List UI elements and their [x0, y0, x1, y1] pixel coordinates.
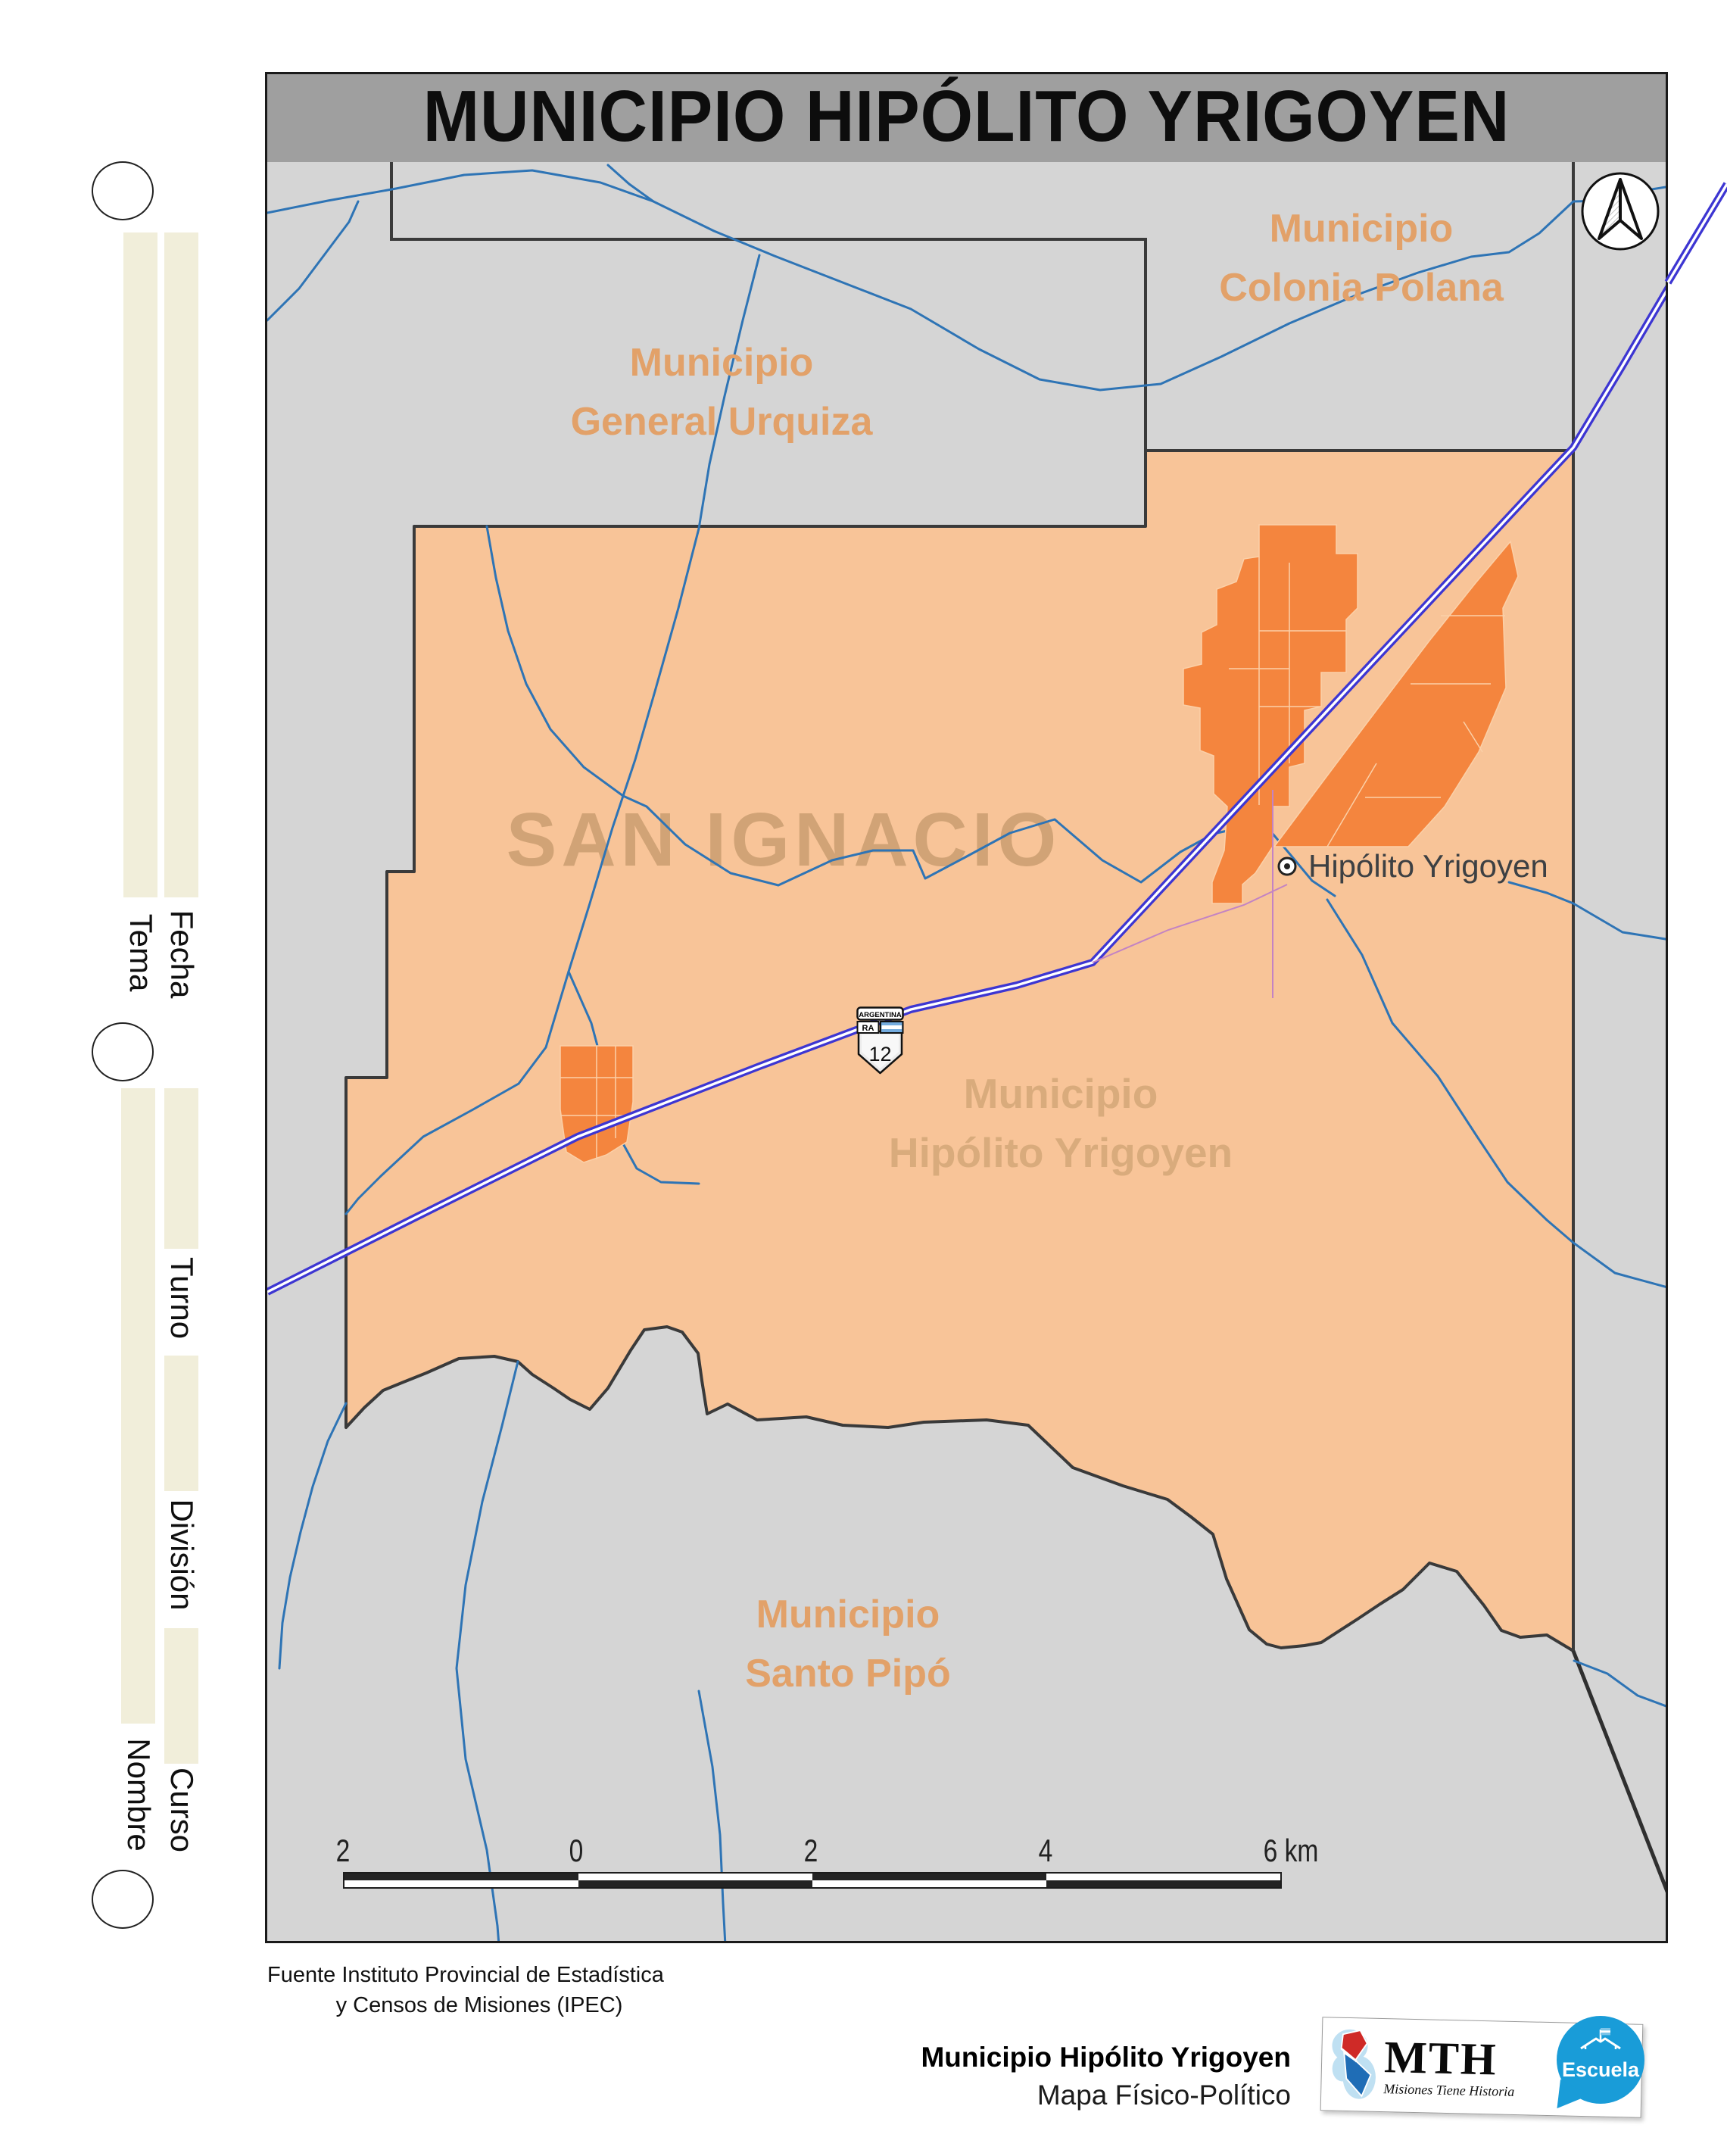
- credit-map-type: Mapa Físico-Político: [833, 2076, 1291, 2114]
- field-label-fecha: Fecha: [164, 910, 200, 999]
- field-label-turno: Turno: [164, 1257, 200, 1339]
- label-general-urquiza: Municipio General Urquiza: [571, 333, 873, 451]
- field-label-nombre: Nombre: [120, 1738, 157, 1851]
- field-line-fecha: [164, 232, 198, 897]
- label-santo-pipo-line2: Santo Pipó: [745, 1644, 951, 1703]
- scale-bar: [343, 1872, 1282, 1889]
- scale-label-3: 4: [1039, 1833, 1053, 1869]
- scale-label-4: 6 km: [1264, 1833, 1319, 1869]
- label-general-urquiza-line2: General Urquiza: [571, 392, 873, 451]
- school-roof-icon: [1578, 2023, 1623, 2054]
- credit-map-name: Municipio Hipólito Yrigoyen: [833, 2039, 1291, 2076]
- escuela-label: Escuela: [1557, 2058, 1644, 2082]
- field-line-nombre: [121, 1088, 155, 1724]
- scale-label-0: 2: [336, 1833, 351, 1869]
- label-hipolito-yrigoyen-region: Municipio Hipólito Yrigoyen: [889, 1064, 1233, 1182]
- label-general-urquiza-line1: Municipio: [571, 333, 873, 392]
- scale-label-2: 2: [804, 1833, 818, 1869]
- field-line-curso: [164, 1628, 198, 1764]
- escuela-bubble-logo: Escuela: [1557, 2016, 1644, 2104]
- argentina-flag-icon: [882, 1025, 902, 1029]
- field-line-division: [164, 1356, 198, 1491]
- map-title: MUNICIPIO HIPÓLITO YRIGOYEN: [316, 74, 1617, 159]
- label-colonia-polana-line2: Colonia Polana: [1219, 258, 1504, 317]
- field-label-division: División: [164, 1499, 200, 1610]
- field-label-tema: Tema: [123, 914, 159, 992]
- route-shield: ARGENTINA RA 12: [856, 1006, 905, 1075]
- map-canvas: SAN IGNACIO: [267, 162, 1668, 1943]
- label-hy-line2: Hipólito Yrigoyen: [889, 1123, 1233, 1182]
- binder-hole-top: [92, 161, 154, 220]
- label-colonia-polana: Municipio Colonia Polana: [1219, 199, 1504, 317]
- source-note: Fuente Instituto Provincial de Estadísti…: [267, 1960, 691, 2020]
- field-line-tema: [123, 232, 157, 897]
- map-credit: Municipio Hipólito Yrigoyen Mapa Físico-…: [833, 2039, 1291, 2114]
- label-hy-line1: Municipio: [889, 1064, 1233, 1123]
- label-santo-pipo: Municipio Santo Pipó: [745, 1585, 951, 1703]
- source-note-line1: Fuente Instituto Provincial de Estadísti…: [267, 1960, 691, 1990]
- town-marker-icon: [1279, 858, 1295, 875]
- label-colonia-polana-line1: Municipio: [1219, 199, 1504, 258]
- source-note-line2: y Censos de Misiones (IPEC): [267, 1990, 691, 2020]
- shield-number-text: 12: [868, 1043, 891, 1066]
- misiones-province-icon: [1329, 2023, 1380, 2105]
- binder-hole-middle: [92, 1022, 154, 1081]
- shield-code-text: RA: [862, 1024, 874, 1033]
- route-12-extension: [1658, 174, 1727, 288]
- town-label: Hipólito Yrigoyen: [1308, 848, 1548, 885]
- field-line-turno: [164, 1088, 198, 1249]
- label-santo-pipo-line1: Municipio: [745, 1585, 951, 1644]
- mth-acronym: MTH: [1384, 2034, 1516, 2083]
- map-title-band: MUNICIPIO HIPÓLITO YRIGOYEN: [267, 74, 1666, 162]
- binder-hole-bottom: [92, 1870, 154, 1929]
- department-watermark: SAN IGNACIO: [507, 797, 1061, 882]
- shield-country-text: ARGENTINA: [859, 1011, 902, 1019]
- scale-label-1: 0: [569, 1833, 584, 1869]
- mth-tagline: Misiones Tiene Historia: [1383, 2081, 1514, 2100]
- map-frame: MUNICIPIO HIPÓLITO YRIGOYEN SAN IGNACIO: [265, 72, 1668, 1943]
- north-arrow-icon: [1579, 170, 1661, 252]
- field-label-curso: Curso: [164, 1768, 200, 1852]
- worksheet-page: { "title": "MUNICIPIO HIPÓLITO YRIGOYEN"…: [0, 0, 1727, 2156]
